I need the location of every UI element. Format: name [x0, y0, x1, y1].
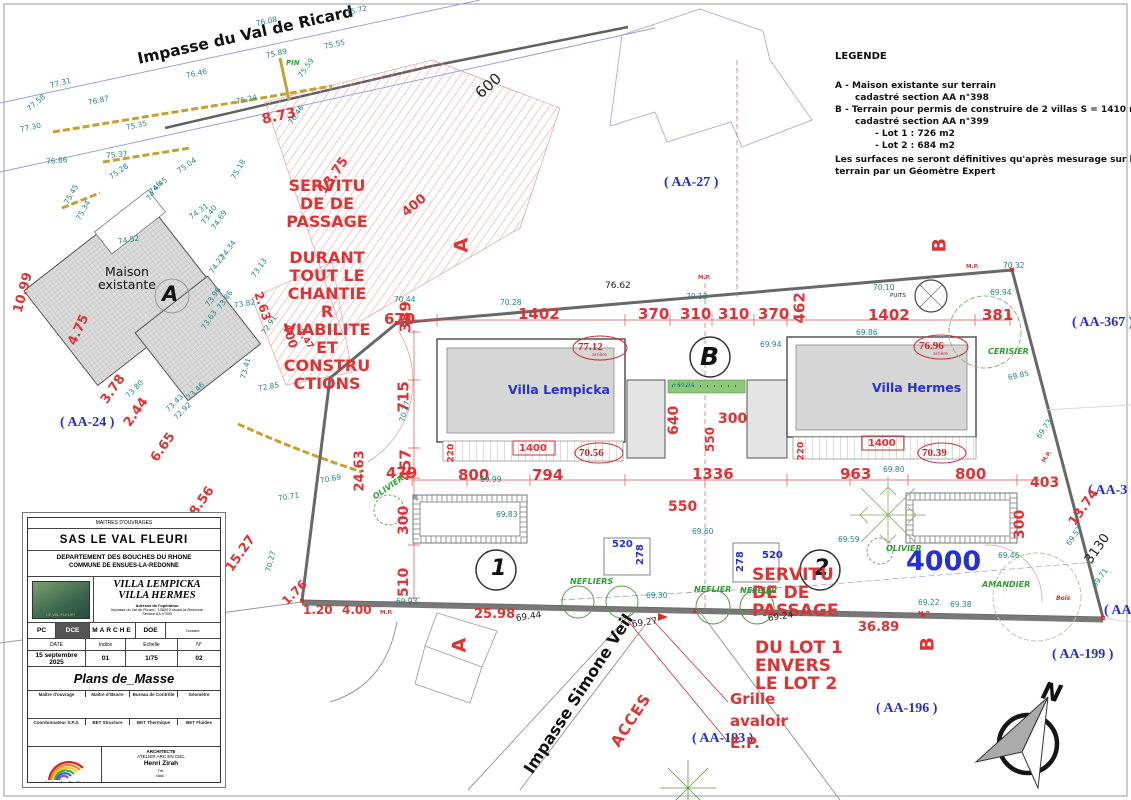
- project-name-1: VILLA LEMPICKA: [113, 579, 200, 590]
- project-thumbnail: LE VAL FLEURI: [32, 581, 90, 619]
- dimension-label: 510: [397, 568, 411, 597]
- elevation-label: 69.83: [496, 511, 517, 519]
- legend-line: A - Maison existante sur terrain: [835, 82, 996, 91]
- dimension-label: 310: [680, 307, 711, 322]
- elevation-label: 69.46: [998, 552, 1019, 560]
- dimension-label: 1.20: [303, 604, 333, 616]
- project-address-2: Section AA n°399: [142, 612, 171, 616]
- section-marker-a: A: [453, 238, 472, 253]
- dimension-label: 300: [1013, 510, 1027, 539]
- project-name-2: VILLA HERMES: [118, 590, 195, 601]
- servitude-note-line: CONSTRU: [257, 358, 397, 374]
- dimension-label: 520: [612, 540, 633, 550]
- tree-label: OLIVIER: [886, 545, 922, 553]
- existing-house-label: Maison existante: [82, 266, 172, 291]
- architect-studio: ATELIER ARC EN CIEL: [137, 754, 185, 759]
- section-marker-a: A: [451, 638, 470, 653]
- elevation-label: 69.30: [646, 592, 667, 600]
- stakeholder-cell: Maître d'ouvrage: [28, 691, 86, 697]
- rainbow-logo-icon: [45, 755, 85, 781]
- col-header-num: N°: [178, 639, 220, 650]
- phase-marche: MARCHE: [90, 623, 136, 638]
- dimension-label: 24.63: [354, 450, 367, 491]
- elevation-label: 70.28: [500, 299, 521, 307]
- existing-house-tag: A: [162, 284, 178, 305]
- dimension-label: 794: [532, 468, 563, 483]
- elevation-label: 69.60: [692, 528, 713, 536]
- parcel-ref: ( AA-27 ): [664, 176, 718, 190]
- elevation-label: 70.13: [686, 293, 707, 301]
- servitude-note-line: DE DE: [257, 196, 397, 212]
- boundary-mark-label: M.P.: [380, 611, 393, 617]
- dimension-label: 76.62: [605, 282, 631, 291]
- parcel-ref: ( AA-24 ): [60, 416, 114, 430]
- dimension-label: 640: [667, 406, 681, 435]
- elevation-label: 69.93: [396, 598, 417, 606]
- lot-1-tag: 1: [491, 558, 506, 580]
- servitude-note-line: DURANT: [257, 250, 397, 266]
- phase-doe: DOE: [136, 623, 166, 638]
- dimension-label: 1400: [519, 444, 547, 454]
- tree-label: NEFLIER: [694, 586, 731, 594]
- boundary-mark-label: M.P.: [918, 612, 931, 618]
- dimension-label: 462: [793, 292, 808, 323]
- elevation-label: 69.86: [856, 329, 877, 337]
- legend-line: Les surfaces ne seront définitives qu'ap…: [835, 156, 1131, 165]
- dimension-label: 220: [798, 442, 807, 461]
- grille-avaloir-line: avaloir: [730, 714, 788, 729]
- elevation-label: 69.22: [918, 599, 939, 607]
- spot-level: 70.56: [579, 448, 604, 459]
- dimension-label: 36.89: [858, 621, 899, 634]
- tree-label: AMANDIER: [982, 581, 1030, 589]
- value-date: 15 septembre 2025: [28, 651, 86, 666]
- value-num: 02: [178, 651, 220, 666]
- titleblock-header: MAITRES D'OUVRAGES: [28, 518, 220, 529]
- spot-level: 76.96: [919, 341, 944, 352]
- dimension-label: 381: [982, 308, 1013, 323]
- elevation-label: +69.94: [672, 383, 694, 389]
- logo-caption: Atelier Arc En Ciel: [44, 781, 84, 783]
- parcel-ref: ( AA-196 ): [876, 702, 937, 716]
- title-block: MAITRES D'OUVRAGES SAS LE VAL FLEURI DEP…: [22, 512, 226, 788]
- dimension-label: 520: [762, 551, 783, 561]
- stakeholder-cell: BET Fluides: [178, 719, 220, 725]
- elevation-label: 70.44: [394, 296, 415, 304]
- stakeholder-cell: Coordonnateur S.P.S.: [28, 719, 86, 725]
- dimension-label: 800: [955, 467, 986, 482]
- stakeholder-cell: BET Thermique: [130, 719, 178, 725]
- dossier-cell: Dossier: [166, 623, 220, 638]
- servitude-note-line: PASSAGE: [257, 214, 397, 230]
- dimension-label: 300: [718, 412, 747, 426]
- spot-level: 77.12: [578, 342, 603, 353]
- dimension-label: 1402: [868, 308, 910, 323]
- servitude-note-line: ENVERS: [755, 658, 831, 675]
- tree-label: CERISIER: [988, 348, 1029, 356]
- tree-label: NEFLIERS: [570, 578, 613, 586]
- value-indice: 01: [86, 651, 126, 666]
- phase-pc: PC: [28, 623, 56, 638]
- boundary-mark-label: M.P.: [698, 276, 711, 282]
- spot-level-sub: arrière: [592, 354, 607, 359]
- dimension-label: 278: [736, 551, 746, 572]
- dimension-label: 1336: [692, 467, 734, 482]
- elevation-label: 69.59: [838, 536, 859, 544]
- elevation-label: 75.37: [106, 150, 128, 159]
- elevation-label: 69.99: [480, 476, 501, 484]
- tree-label: Bois: [1056, 596, 1070, 602]
- department-label: DEPARTEMENT DES BOUCHES DU RHONE: [28, 554, 220, 561]
- servitude-note-line: ET: [257, 340, 397, 356]
- servitude-note-line: TOUT LE: [257, 268, 397, 284]
- spot-level-sub: arrière: [933, 353, 948, 358]
- dimension-label: 370: [638, 307, 669, 322]
- elevation-label: 69.80: [883, 466, 904, 474]
- document-title: Plans de_Masse: [28, 667, 220, 691]
- villa-lempicka-label: Villa Lempicka: [508, 384, 610, 397]
- legend-line: terrain par un Géomètre Expert: [835, 168, 995, 177]
- section-marker-b: B: [931, 238, 950, 252]
- parcel-ref: ( AA-367 ): [1072, 316, 1131, 330]
- grille-avaloir-line: E.P.: [730, 736, 760, 751]
- legend-line: B - Terrain pour permis de construire de…: [835, 106, 1131, 115]
- dimension-label: 4.00: [342, 604, 372, 616]
- section-marker-b: B: [919, 637, 938, 651]
- boundary-mark-label: M.P.: [966, 265, 979, 271]
- dimension-label: 403: [1030, 476, 1059, 490]
- dimension-label: 370: [758, 307, 789, 322]
- dimension-label: 550: [704, 427, 716, 452]
- elevation-label: 69.94: [760, 341, 781, 349]
- stakeholder-cell: Bureau de Contrôle: [130, 691, 178, 697]
- elevation-label: 69.94: [990, 289, 1011, 297]
- grille-avaloir-line: Grille: [730, 692, 775, 707]
- dimension-label: 300: [397, 506, 411, 535]
- dimension-label: 25.98: [474, 608, 515, 621]
- col-header-echelle: Echelle: [126, 639, 178, 650]
- spot-level: 70.39: [922, 448, 947, 459]
- col-header-date: DATE: [28, 639, 86, 650]
- legend-line: - Lot 2 : 684 m2: [875, 142, 955, 151]
- parcel-ref: ( AA: [1104, 604, 1131, 618]
- elevation-label: 70.32: [1003, 262, 1024, 270]
- elevation-label: 76.86: [46, 156, 68, 165]
- legend-line: cadastré section AA n°398: [855, 94, 989, 103]
- commune-label: COMMUNE DE ENSUES-LA-REDONNE: [28, 563, 220, 569]
- servitude-note-line: PASSAGE: [752, 603, 839, 620]
- phase-dce-active: DCE: [56, 623, 90, 638]
- stakeholder-cell: BET Structure: [86, 719, 130, 725]
- site-plan-sheet: Impasse du Val de Ricard Impasse Simone …: [0, 0, 1131, 800]
- thumbnail-caption: LE VAL FLEURI: [33, 612, 89, 617]
- stakeholder-cell: Maître d'Œuvre: [86, 691, 130, 697]
- dimension-label: 963: [840, 467, 871, 482]
- elevation-label: 70.10: [873, 284, 894, 292]
- dimension-label: 389: [399, 301, 414, 332]
- dimension-label: 1402: [518, 307, 560, 322]
- dimension-label: 278: [636, 544, 646, 565]
- architect-name: Henri Zirah: [144, 760, 178, 767]
- servitude-note-line: SERVITU: [752, 567, 834, 584]
- villa-hermes-label: Villa Hermes: [872, 382, 961, 395]
- legend-line: - Lot 1 : 726 m2: [875, 130, 955, 139]
- well-label: PUITS: [890, 294, 906, 300]
- architect-mail: Mail :: [156, 773, 166, 778]
- elevation-label: 69.38: [950, 601, 971, 609]
- servitude-note-line: DU LOT 1: [755, 640, 843, 657]
- client-name: SAS LE VAL FLEURI: [28, 529, 220, 551]
- tree-label: NEFLIER: [740, 587, 777, 595]
- zone-b-tag: B: [700, 344, 719, 369]
- legend-line: cadastré section AA n°399: [855, 118, 989, 127]
- dimension-label: 1400: [868, 439, 896, 449]
- tree-label: PIN: [286, 60, 300, 67]
- servitude-note-line: CHANTIE: [257, 286, 397, 302]
- value-echelle: 1/75: [126, 651, 178, 666]
- legend-title: LEGENDE: [835, 52, 887, 62]
- col-header-indice: Indice: [86, 639, 126, 650]
- parcel-ref: ( AA-199 ): [1052, 648, 1113, 662]
- dimension-label: 310: [718, 307, 749, 322]
- dimension-label: 220: [448, 444, 457, 463]
- stakeholder-cell: Géomètre: [178, 691, 220, 697]
- dimension-label: 550: [668, 500, 697, 514]
- servitude-note-line: VIABILITE: [257, 322, 397, 338]
